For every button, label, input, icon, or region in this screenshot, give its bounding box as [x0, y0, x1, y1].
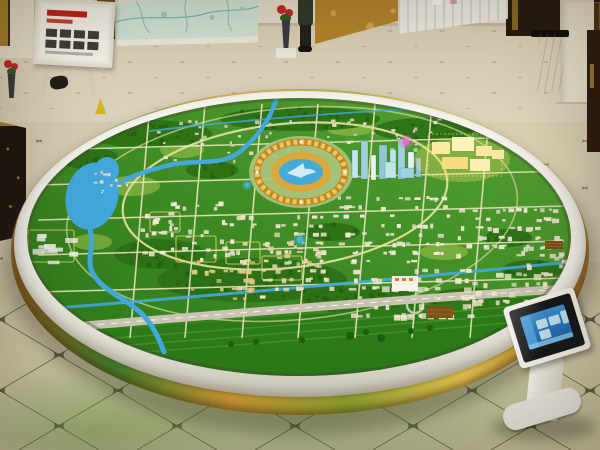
wall-map-panel — [116, 0, 258, 46]
poster-red-title-bar — [47, 10, 87, 18]
table-white-rim — [14, 91, 586, 397]
poster-photo-thumb — [73, 41, 84, 50]
poster-photo-thumb — [60, 29, 71, 38]
flower-vase-left — [2, 60, 22, 102]
person-legs — [300, 25, 311, 48]
screen-sidebar — [520, 315, 540, 350]
screen-bottom-bar — [528, 332, 573, 350]
poster-photo-thumb — [59, 40, 70, 49]
gilded-frame-edge — [0, 0, 10, 46]
poster-red-subtitle-bar — [47, 19, 73, 24]
showroom-scene — [0, 0, 600, 450]
gilded-trim — [590, 64, 594, 88]
screen-thumbnail — [535, 318, 548, 330]
poster-photo-thumb — [45, 40, 56, 49]
presentation-board — [32, 0, 115, 68]
kiosk-touchscreen[interactable] — [520, 304, 574, 350]
poster — [39, 4, 110, 61]
poster-photo-thumb — [87, 42, 98, 51]
table-item-pink — [450, 0, 457, 4]
screen-thumbnail — [548, 314, 561, 326]
poster-caption-line — [45, 51, 93, 57]
standing-person — [297, 0, 315, 54]
screen-thumbnail — [539, 328, 552, 340]
poster-photo-thumb — [88, 31, 99, 40]
poster-photo-thumb — [46, 29, 57, 38]
poster-photo-thumb — [74, 30, 85, 39]
side-furniture — [587, 30, 600, 152]
table-item-white — [432, 0, 442, 5]
kiosk-bezel — [509, 293, 586, 363]
flower-vase-center — [274, 5, 298, 60]
person-shoes — [298, 46, 312, 52]
screen-thumbnail — [560, 307, 574, 324]
wall-map-graphic — [116, 0, 258, 34]
person-jacket — [298, 0, 313, 27]
gilded-trim — [512, 0, 518, 30]
